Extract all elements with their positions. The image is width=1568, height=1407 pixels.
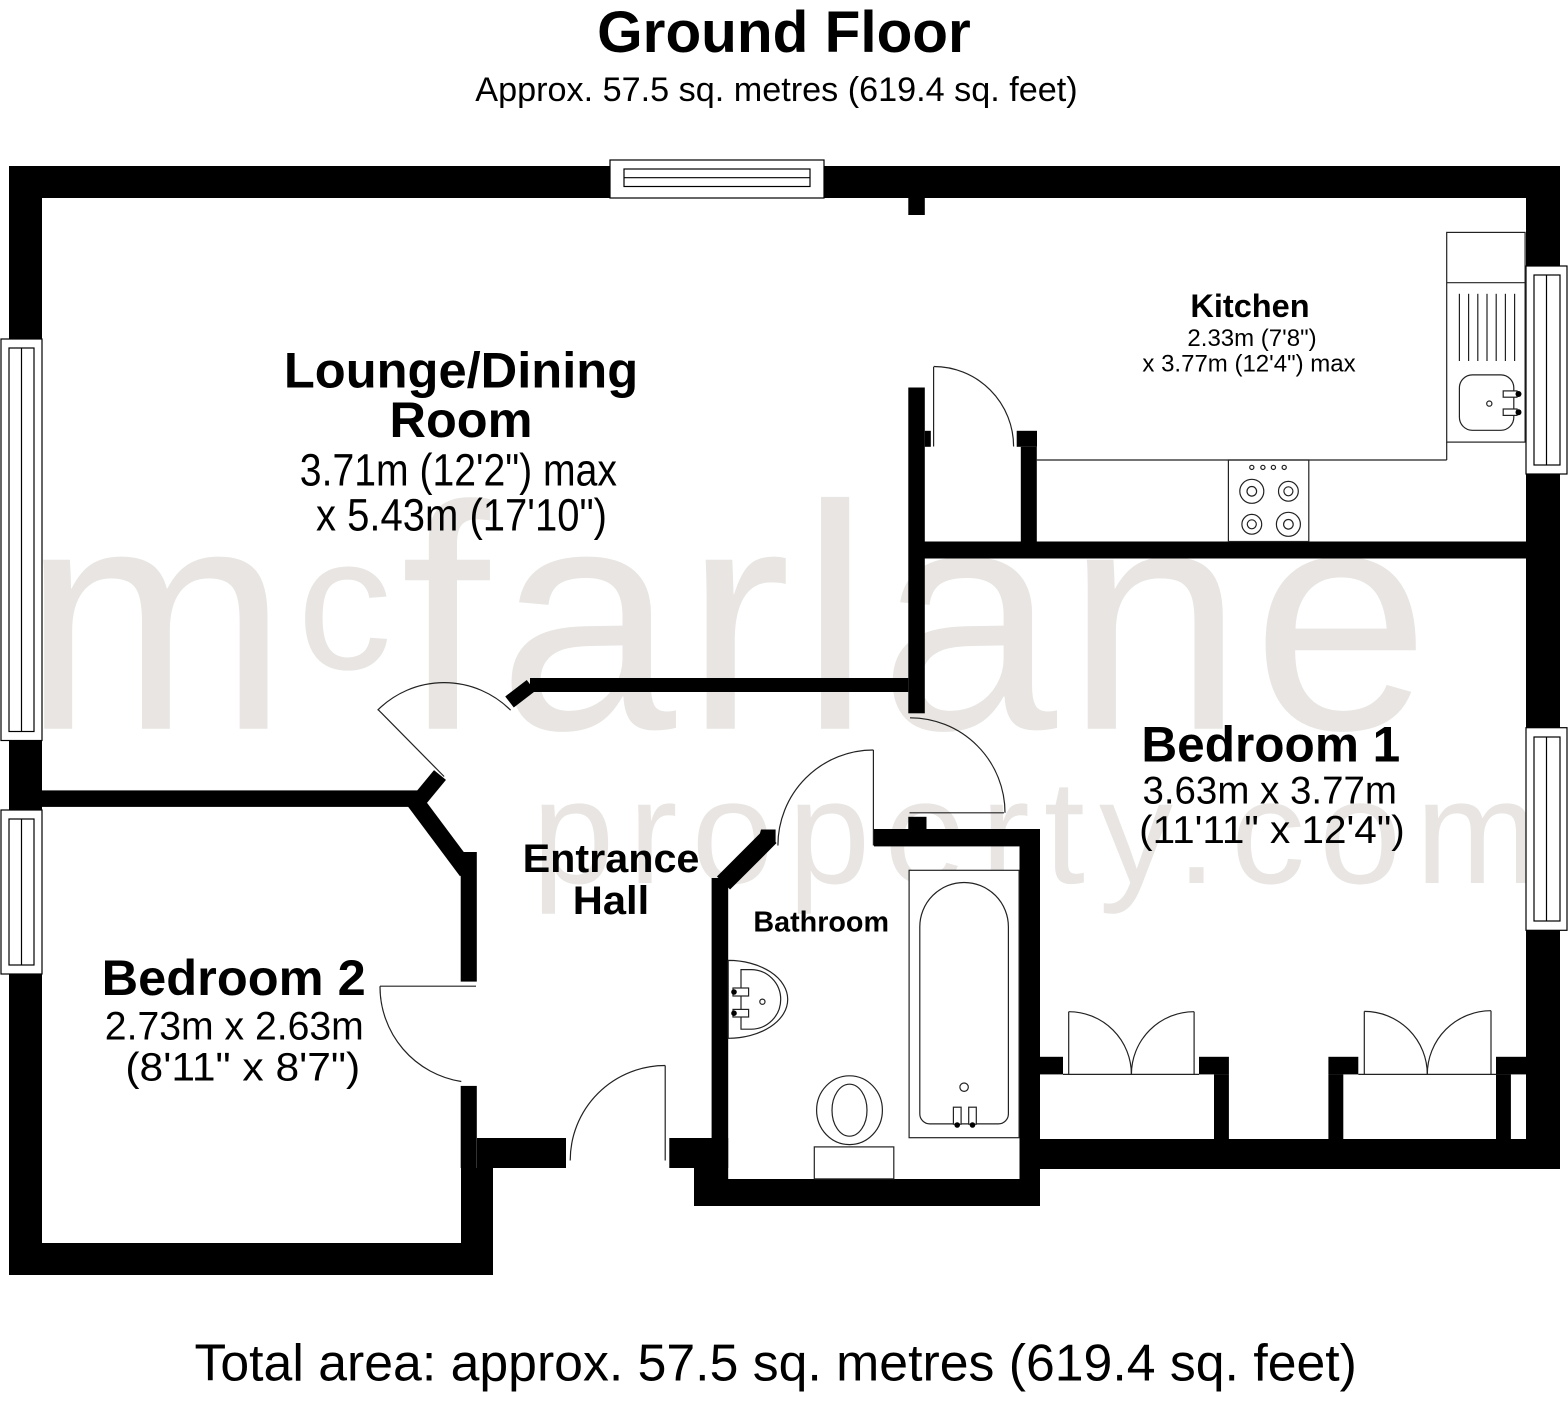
svg-text:x 3.77m (12'4") max: x 3.77m (12'4") max <box>1142 350 1355 377</box>
svg-text:2.73m x 2.63m: 2.73m x 2.63m <box>105 1004 364 1048</box>
svg-text:Lounge/Dining: Lounge/Dining <box>284 342 638 398</box>
svg-text:Bedroom 2: Bedroom 2 <box>102 950 366 1006</box>
svg-text:Bedroom 1: Bedroom 1 <box>1141 716 1400 772</box>
svg-text:Kitchen: Kitchen <box>1190 288 1309 324</box>
svg-text:Bathroom: Bathroom <box>753 907 889 939</box>
svg-text:Ground Floor: Ground Floor <box>597 0 971 65</box>
svg-text:Total area: approx. 57.5 sq. m: Total area: approx. 57.5 sq. metres (619… <box>195 1334 1357 1392</box>
svg-text:2.33m (7'8"): 2.33m (7'8") <box>1187 325 1316 352</box>
svg-text:(8'11" x 8'7"): (8'11" x 8'7") <box>125 1045 360 1089</box>
svg-text:Approx. 57.5 sq. metres (619.4: Approx. 57.5 sq. metres (619.4 sq. feet) <box>475 71 1077 109</box>
svg-text:Hall: Hall <box>573 879 649 923</box>
svg-text:Entrance: Entrance <box>523 837 700 881</box>
svg-text:(11'11" x 12'4"): (11'11" x 12'4") <box>1139 809 1405 852</box>
svg-text:3.63m x 3.77m: 3.63m x 3.77m <box>1142 770 1397 813</box>
svg-text:x 5.43m (17'10"): x 5.43m (17'10") <box>316 489 607 540</box>
svg-text:Room: Room <box>390 392 533 448</box>
svg-text:3.71m (12'2") max: 3.71m (12'2") max <box>300 445 618 496</box>
